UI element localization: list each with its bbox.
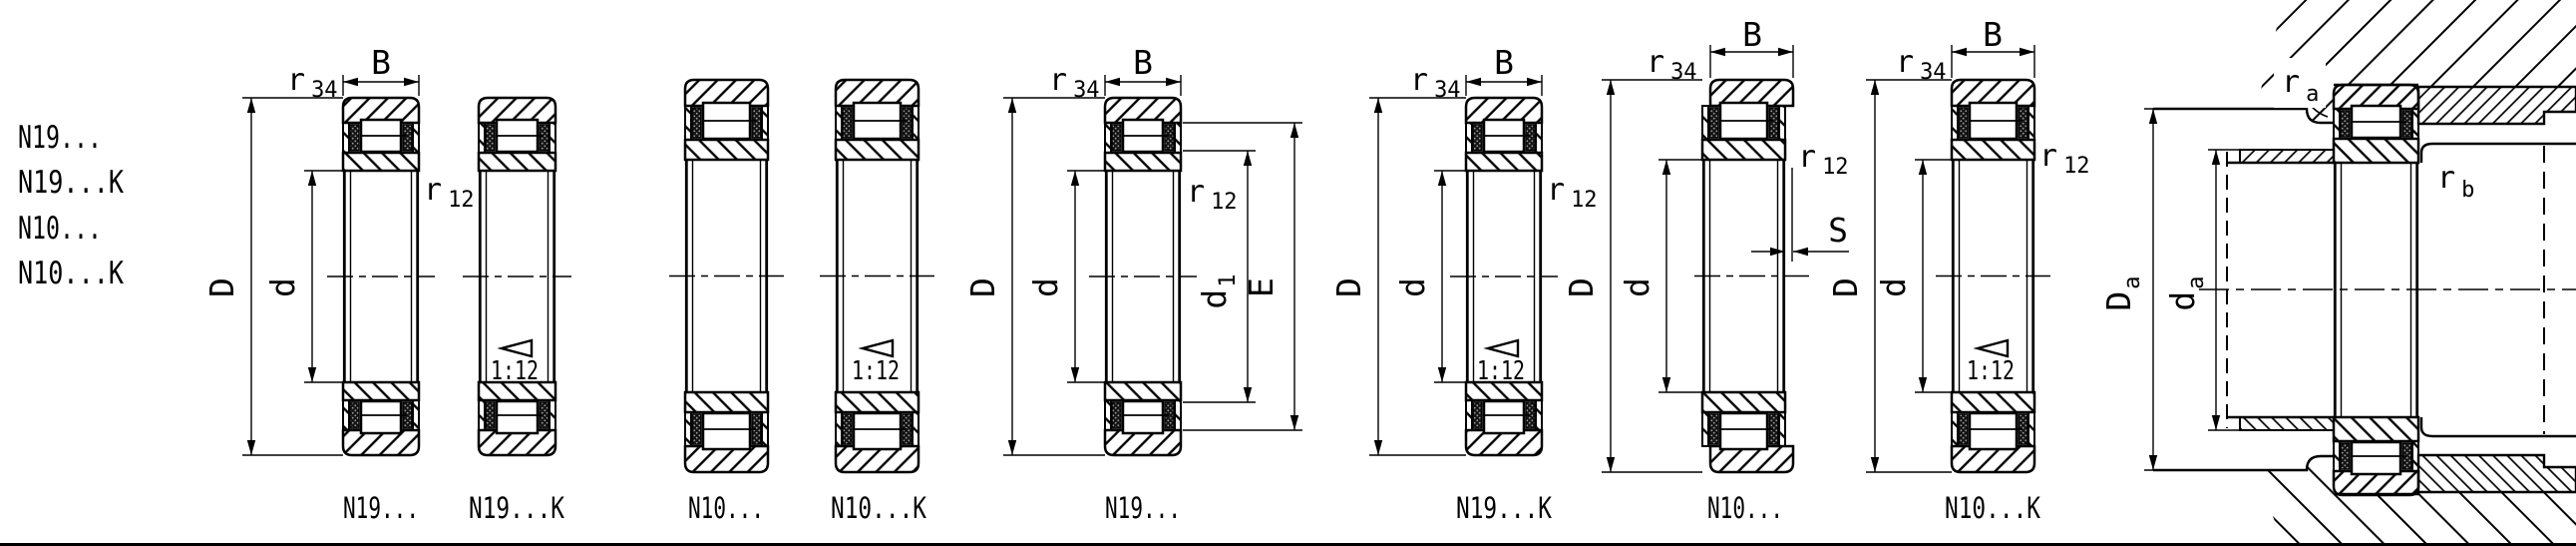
caption-fig3: N10...	[688, 491, 764, 525]
taper-fig4: 1:12	[852, 356, 900, 386]
series-item-n10k: N10...K	[18, 256, 124, 291]
caption-fig2: N19...K	[469, 491, 564, 525]
dim-D-fig8: D	[1826, 277, 1865, 297]
bearing-dimension-drawing: N19... N19...K N10... N10...K N19... N19…	[0, 0, 2576, 546]
bearing-figure-2	[463, 98, 571, 455]
dim-rb: rb	[2437, 161, 2474, 203]
caption-fig1: N19...	[343, 491, 419, 525]
dim-d-fig8: d	[1874, 277, 1913, 297]
series-item-n19: N19...	[18, 120, 102, 156]
figures-layer	[0, 0, 2576, 546]
dim-E-fig5: E	[1242, 277, 1281, 297]
dim-r12-fig5: r12	[1187, 175, 1238, 215]
width-dimension-labels: B B B B B	[371, 15, 2003, 82]
dim-D-fig6: D	[1329, 277, 1368, 297]
dim-B-fig5: B	[1133, 43, 1153, 82]
taper-fig8: 1:12	[1967, 356, 2015, 386]
bearing-figure-8	[1866, 45, 2050, 472]
dim-S-fig7: S	[1828, 211, 1848, 250]
diameter-labels: D d D d D d D d D d d1 E	[202, 273, 1913, 308]
dim-D-fig5: D	[963, 277, 1002, 297]
dim-d-fig5: d	[1026, 277, 1065, 297]
r34-radius-labels: r34 r34 r34 r34 r34	[287, 45, 1947, 103]
dim-r34-fig5: r34	[1049, 63, 1100, 103]
dim-r12-fig1: r12	[424, 173, 475, 213]
r12-radius-labels: r12 r12 r12 r12 r12	[424, 139, 2090, 215]
dim-B-fig1: B	[371, 43, 391, 82]
dim-da: da	[2163, 275, 2209, 310]
caption-fig8: N10...K	[1945, 491, 2040, 525]
series-list: N19... N19...K N10... N10...K	[18, 120, 124, 291]
dim-r12-fig6: r12	[1547, 173, 1598, 213]
taper-fig2: 1:12	[491, 356, 539, 386]
bearing-figure-4	[820, 80, 934, 472]
dim-d1-fig5: d1	[1195, 273, 1241, 308]
caption-fig7: N10...	[1707, 491, 1783, 525]
dim-r12-fig8: r12	[2039, 139, 2090, 179]
dim-B-fig8: B	[1983, 15, 2003, 54]
bearing-figure-3	[669, 80, 784, 472]
caption-fig5: N19...	[1105, 491, 1181, 525]
dim-r12-fig7: r12	[1798, 140, 1849, 180]
figure-captions: N19... N19...K N10... N10...K N19... N19…	[343, 491, 2040, 525]
dim-r34-fig1: r34	[287, 63, 338, 103]
dim-d-fig6: d	[1393, 277, 1432, 297]
bearing-figure-5	[1003, 75, 1302, 455]
dim-r34-fig7: r34	[1647, 45, 1697, 85]
taper-fig6: 1:12	[1477, 356, 1525, 386]
dim-B-fig6: B	[1494, 43, 1514, 82]
dim-d-fig7: d	[1618, 277, 1656, 297]
dim-r34-fig6: r34	[1410, 63, 1461, 103]
series-item-n10: N10...	[18, 211, 102, 247]
dim-D-fig7: D	[1562, 277, 1601, 297]
bearing-figure-7	[1602, 45, 1849, 472]
dim-d-fig1: d	[263, 277, 302, 297]
caption-fig6: N19...K	[1456, 491, 1552, 525]
caption-fig4: N10...K	[831, 491, 926, 525]
dim-B-fig7: B	[1742, 15, 1762, 54]
series-item-n19k: N19...K	[18, 165, 124, 201]
taper-ratio-labels: 1:12 1:12 1:12 1:12	[491, 356, 2015, 386]
dim-Da: Da	[2099, 275, 2145, 310]
dim-D-fig1: D	[202, 277, 241, 297]
dim-r34-fig8: r34	[1896, 45, 1947, 85]
drawing-canvas: N19... N19...K N10... N10...K N19... N19…	[0, 0, 2576, 546]
bearing-figure-6	[1369, 75, 1558, 455]
bearing-figure-1	[242, 75, 435, 455]
